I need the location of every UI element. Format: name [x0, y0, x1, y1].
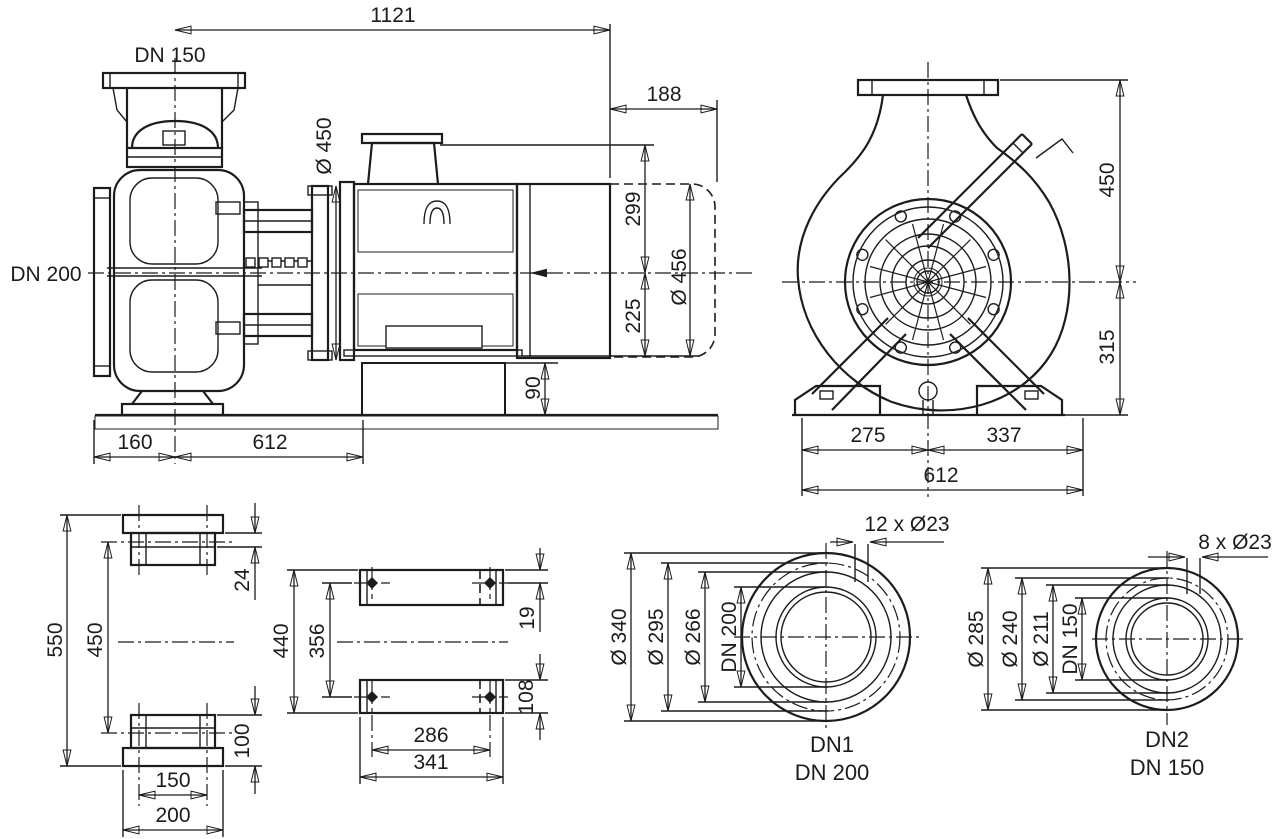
dn2-port-id-label: DN2	[1145, 727, 1189, 752]
dn2-bolt-circle-label: Ø 240	[999, 610, 1022, 667]
dn2-bore-label: DN 150	[1059, 603, 1082, 674]
dim-flange-to-axis-label: 160	[117, 431, 152, 454]
dn1-geometry	[734, 543, 920, 731]
dim-axis-to-top-label: 299	[622, 191, 645, 226]
motor-flange	[340, 182, 354, 360]
dim-edge-to-bolt-bottom-label: 108	[515, 679, 538, 714]
dim-bolt-spacing-h-label: 286	[413, 724, 448, 747]
dn1-bore-label: DN 200	[718, 601, 741, 672]
dim-flange-width-label: 200	[155, 804, 190, 827]
discharge-flange	[94, 188, 110, 376]
dn1-raised-face-label: Ø 266	[682, 608, 705, 665]
dn1-port-size-label: DN 200	[795, 760, 870, 785]
dim-foot-height-label: 100	[231, 723, 254, 758]
dim-bolt-height-label: 450	[84, 622, 107, 657]
side-view-geometry	[88, 58, 752, 464]
lifting-eye	[424, 201, 450, 224]
dim-base-width-label: 612	[923, 464, 958, 487]
dim-axis-to-base-front-label: 315	[1096, 329, 1119, 364]
dim-baseplate-height-label: 440	[270, 623, 293, 658]
dim-lantern-diameter-label: Ø 450	[313, 117, 336, 174]
dn1-dimensions: Ø 340 Ø 295 Ø 266 DN 200 12 x Ø23 DN1 DN…	[608, 513, 950, 785]
dn2-port-size-label: DN 150	[1130, 755, 1205, 780]
dn2-flange-view: Ø 285 Ø 240 Ø 211 DN 150 8 x Ø23 DN2 DN …	[965, 531, 1272, 780]
dim-edge-to-bolt-top-label: 19	[516, 606, 539, 629]
dim-overall-height-label: 550	[44, 622, 67, 657]
front-view: 450 315 275 337 612	[782, 62, 1136, 497]
dn2-bolt-note-label: 8 x Ø23	[1198, 531, 1272, 554]
pump-dimensional-drawing: 1121 188 DN 150 DN 200 Ø 450 299 225 Ø 4…	[0, 0, 1280, 839]
dim-total-length-label: 1121	[370, 4, 415, 27]
dim-bolt-spacing-v-label: 356	[306, 623, 329, 658]
dim-flange-thickness-label: 24	[231, 568, 254, 592]
dim-foundation-height-label: 90	[522, 376, 545, 399]
baseplate-geometry	[337, 567, 508, 713]
dn2-dimensions: Ø 285 Ø 240 Ø 211 DN 150 8 x Ø23 DN2 DN …	[965, 531, 1272, 780]
side-view: 1121 188 DN 150 DN 200 Ø 450 299 225 Ø 4…	[10, 4, 752, 464]
foundation-block	[362, 363, 505, 415]
pump-dimensional-drawing-page: 1121 188 DN 150 DN 200 Ø 450 299 225 Ø 4…	[0, 0, 1280, 839]
baseplate-view: 440 356 19 108 286 341	[270, 548, 548, 784]
dn1-flange-view: Ø 340 Ø 295 Ø 266 DN 200 12 x Ø23 DN1 DN…	[608, 513, 950, 785]
motor-rear-housing	[517, 184, 610, 358]
flange-section-dimensions: 550 450 24 100 150 200	[44, 503, 262, 837]
discharge-size-label: DN 200	[10, 263, 81, 286]
dn1-bolt-note-label: 12 x Ø23	[864, 513, 949, 536]
dn1-bolt-circle-label: Ø 295	[645, 608, 668, 665]
volute-casing-front	[798, 95, 1070, 410]
dim-motor-diameter-label: Ø 456	[668, 248, 691, 305]
dn2-geometry	[1092, 551, 1246, 725]
suction-flange-plate	[103, 73, 245, 88]
dim-baseplate-width-label: 341	[413, 751, 448, 774]
dim-motor-overhang-label: 188	[646, 83, 681, 106]
right-foot	[977, 386, 1062, 415]
terminal-box	[368, 143, 438, 184]
dn1-port-id-label: DN1	[810, 732, 854, 757]
dn1-outer-diameter-label: Ø 340	[608, 608, 631, 665]
suction-flange-section-view: 550 450 24 100 150 200	[44, 503, 262, 837]
dim-base-length-label: 612	[252, 431, 287, 454]
front-view-dimensions: 450 315 275 337 612	[802, 80, 1128, 496]
suction-size-label: DN 150	[134, 44, 205, 67]
dn2-outer-diameter-label: Ø 285	[965, 610, 988, 667]
dim-left-foot-label: 275	[850, 424, 885, 447]
dim-bolt-spacing-label: 150	[155, 769, 190, 792]
flange-section-geometry	[101, 505, 234, 806]
dim-right-foot-label: 337	[986, 424, 1021, 447]
dim-axis-to-flange-top-label: 450	[1096, 162, 1119, 197]
dim-axis-to-base-label: 225	[622, 298, 645, 333]
motor-nameplate	[386, 326, 482, 348]
dn2-raised-face-label: Ø 211	[1030, 611, 1053, 667]
ground-hatch	[95, 416, 718, 429]
anchor-bolt-markers	[354, 567, 508, 713]
casing-foot	[122, 404, 223, 415]
